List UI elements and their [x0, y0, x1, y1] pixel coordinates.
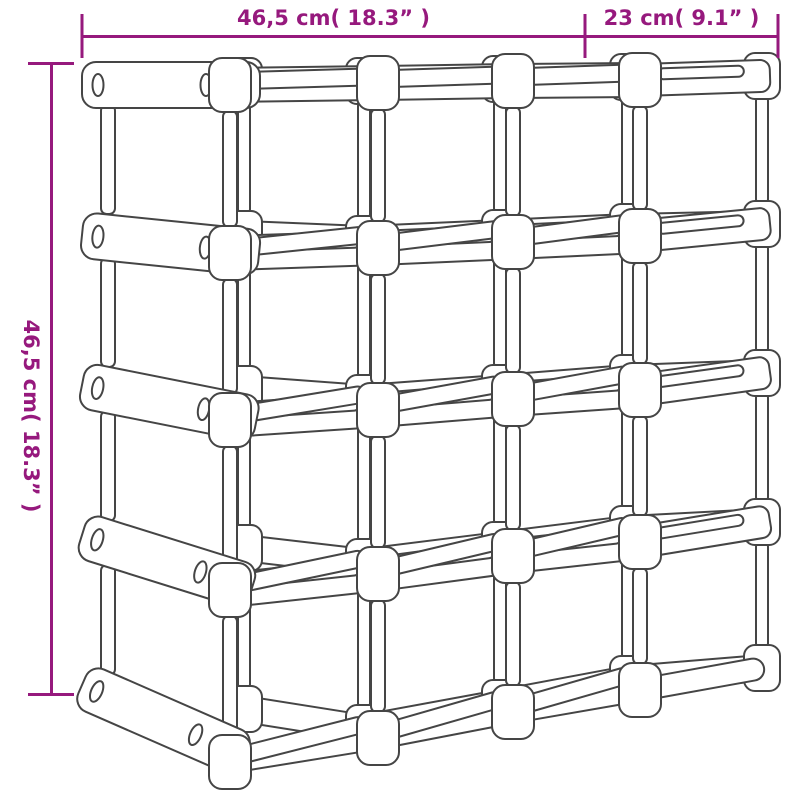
connector-block: [209, 735, 251, 789]
connector-block: [357, 56, 399, 110]
connector-block: [357, 221, 399, 275]
back-dowel: [358, 101, 370, 219]
back-dowel: [494, 99, 506, 213]
connector-block: [492, 54, 534, 108]
front-dowel: [223, 111, 237, 227]
front-dowel: [223, 279, 237, 394]
wine-rack-diagram: [0, 0, 800, 800]
dimension-lines: [28, 14, 778, 695]
back-dowel: [756, 244, 768, 353]
front-dowel: [371, 600, 385, 712]
connector-block: [619, 209, 661, 263]
front-dowel: [223, 446, 237, 564]
connector-block: [492, 372, 534, 426]
back-dowel: [238, 101, 250, 214]
back-dowel: [756, 542, 768, 648]
connector-block: [619, 363, 661, 417]
width-dimension-label: 46,5 cm( 18.3” ): [82, 6, 585, 31]
connector-block: [357, 383, 399, 437]
connector-block: [357, 711, 399, 765]
connector-block: [492, 685, 534, 739]
front-dowel: [633, 568, 647, 664]
depth-dimension-label: 23 cm( 9.1” ): [585, 6, 778, 31]
front-dowel: [506, 107, 520, 216]
front-dowel: [101, 105, 115, 214]
front-dowel: [633, 262, 647, 364]
front-dowel: [371, 109, 385, 222]
back-dowel: [358, 259, 370, 378]
connector-block: [619, 515, 661, 569]
screw-hole: [93, 74, 104, 96]
rail-slot: [658, 66, 744, 80]
front-dowel: [633, 106, 647, 210]
connector-block: [209, 58, 251, 112]
diagram-stage: 46,5 cm( 18.3” ) 23 cm( 9.1” ) 46,5 cm( …: [0, 0, 800, 800]
front-dowel: [101, 565, 115, 675]
front-dowel: [506, 582, 520, 686]
back-dowel: [756, 393, 768, 502]
front-dowel: [371, 436, 385, 548]
connector-block: [619, 53, 661, 107]
connector-block: [357, 547, 399, 601]
connector-block: [209, 393, 251, 447]
connector-block: [209, 226, 251, 280]
front-dowel: [506, 268, 520, 373]
front-dowel: [101, 411, 115, 521]
back-dowel: [756, 96, 768, 204]
front-dowel: [633, 416, 647, 516]
front-dowel: [371, 274, 385, 384]
connector-block: [619, 663, 661, 717]
height-dimension-label: 46,5 cm( 18.3” ): [17, 206, 43, 626]
front-dowel: [506, 425, 520, 530]
connector-block: [209, 563, 251, 617]
front-dowel: [101, 258, 115, 367]
rack-line-art: [73, 53, 780, 789]
connector-block: [492, 215, 534, 269]
front-dowel: [223, 616, 237, 736]
back-dowel: [494, 253, 506, 368]
connector-block: [492, 529, 534, 583]
